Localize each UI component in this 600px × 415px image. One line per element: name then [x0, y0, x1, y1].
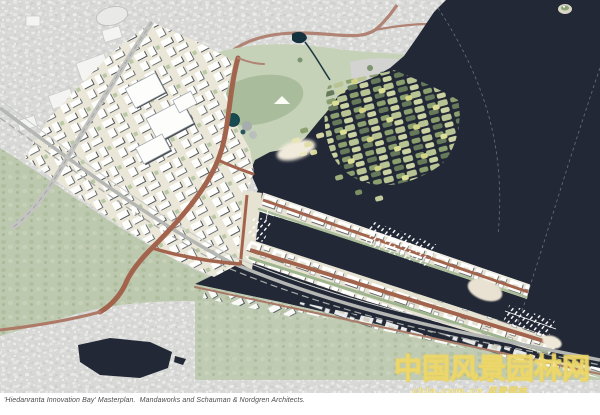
masterplan-map-image: 中国风景园林网 chla.com.cn 风景园林: [0, 0, 600, 393]
image-caption: 'Hiedanranta Innovation Bay' Masterplan.…: [4, 397, 305, 404]
caption-band: 'Hiedanranta Innovation Bay' Masterplan.…: [0, 393, 600, 415]
small-island: [558, 4, 572, 14]
masterplan-screenshot: 中国风景园林网 chla.com.cn 风景园林 'Hiedanranta In…: [0, 0, 600, 415]
